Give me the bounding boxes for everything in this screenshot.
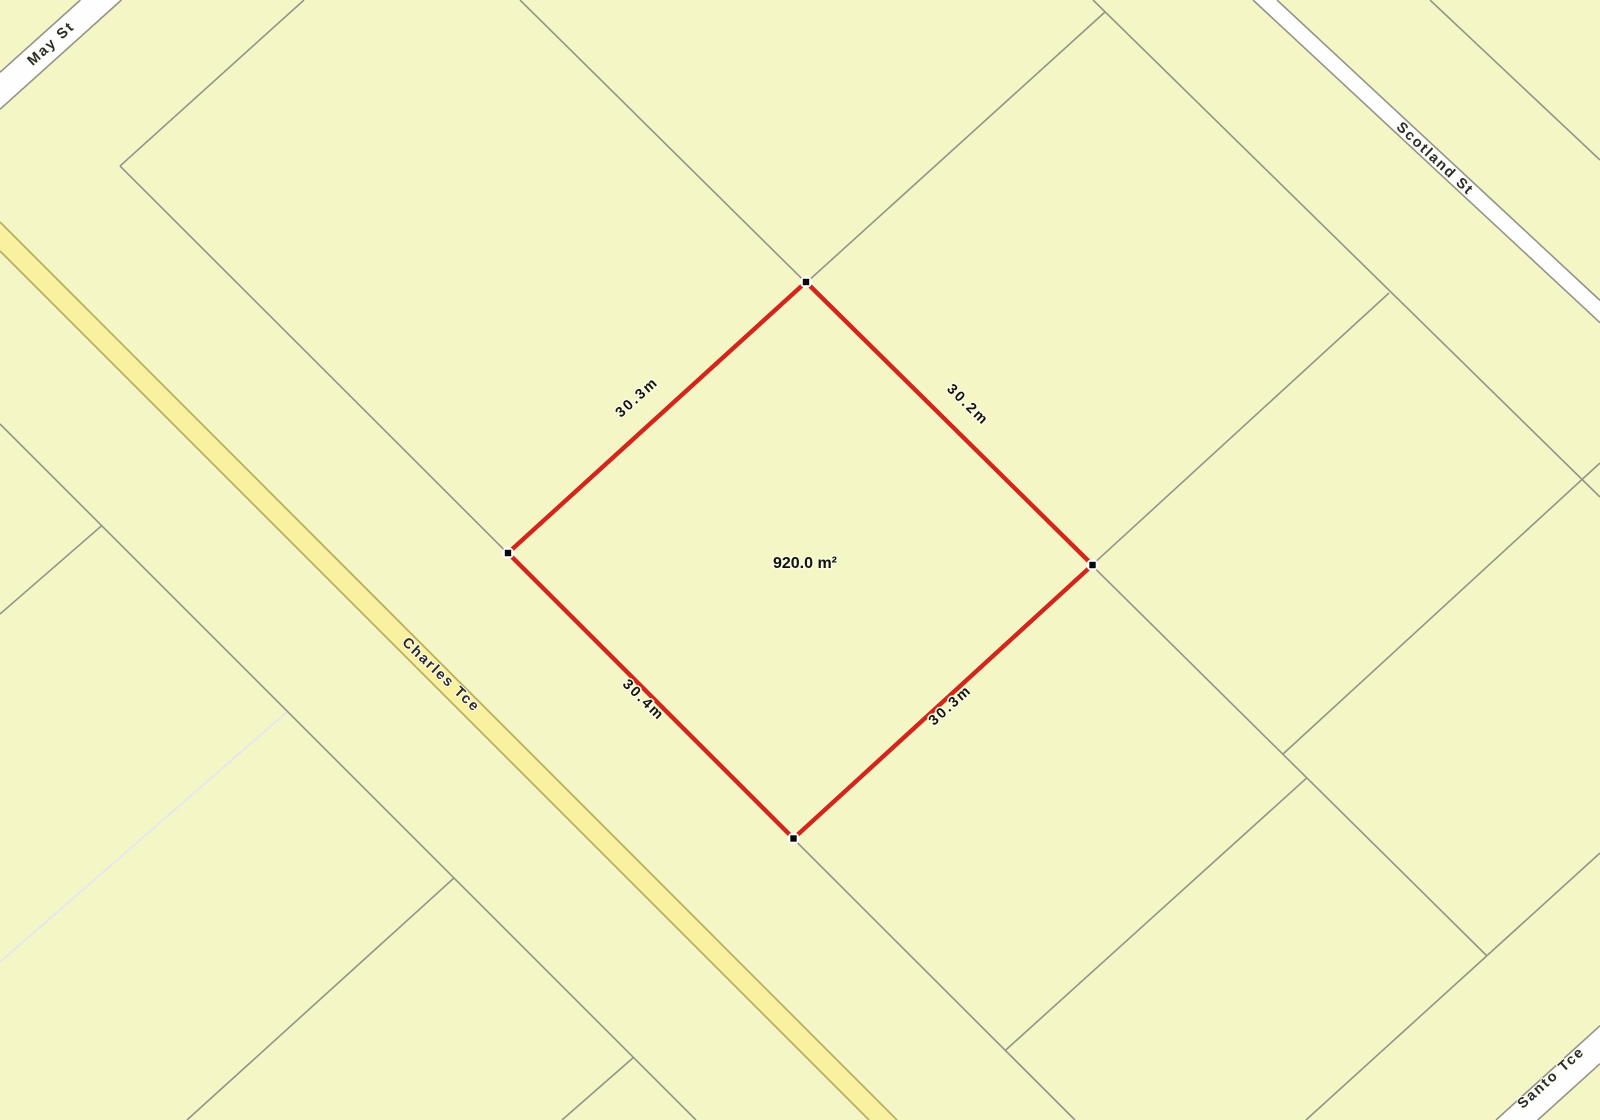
- svg-text:920.0 m²: 920.0 m²: [773, 555, 837, 572]
